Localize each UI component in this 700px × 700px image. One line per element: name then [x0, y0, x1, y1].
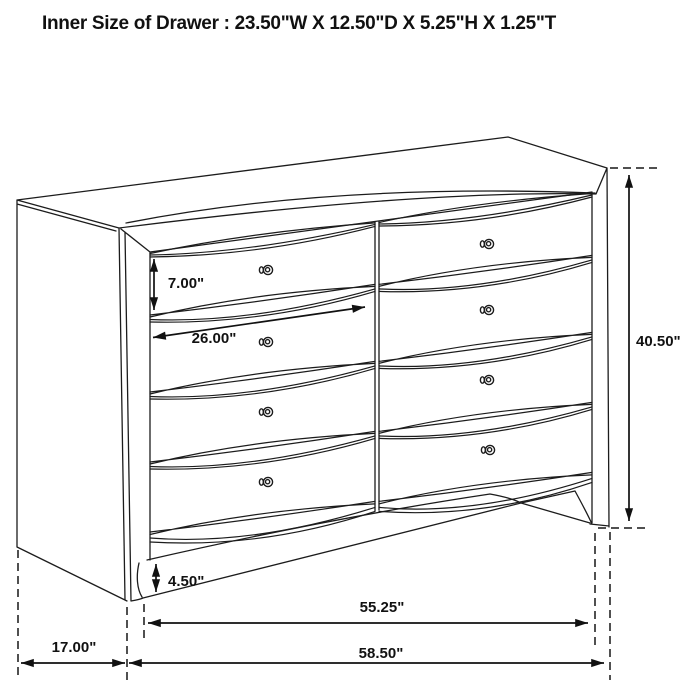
dresser-line-drawing — [17, 137, 609, 601]
dim-label-drawer-height: 7.00" — [168, 275, 204, 292]
cabinet-outline — [17, 137, 609, 601]
drawer-knob-icon — [480, 305, 493, 314]
dresser-dimension-drawing: 7.00" 26.00" 40.50" 4.50" 55.25" 17.00" … — [0, 0, 700, 700]
drawer-knob-icon — [480, 239, 493, 248]
extension-dashed-lines — [18, 168, 657, 680]
drawer-knob-icon — [259, 265, 272, 274]
dimension-annotations: 7.00" 26.00" 40.50" 4.50" 55.25" 17.00" … — [18, 168, 681, 680]
eyebrow-curves-path — [150, 194, 592, 544]
drawer-knob-icon — [481, 445, 494, 454]
dim-label-drawer-width: 26.00" — [192, 330, 237, 347]
dim-label-front-feet-width: 55.25" — [360, 599, 405, 616]
dim-label-overall-height: 40.50" — [636, 333, 681, 350]
drawer-knob-icon — [259, 337, 272, 346]
drawer-knob-icon — [259, 407, 272, 416]
drawer-eyebrow-carvings — [150, 194, 592, 544]
drawer-knob-icon — [259, 477, 272, 486]
drawer-knob-icon — [480, 375, 493, 384]
dim-label-overall-width: 58.50" — [359, 645, 404, 662]
dim-label-side-depth: 17.00" — [52, 639, 97, 656]
dimension-diagram-page: Inner Size of Drawer : 23.50"W X 12.50"D… — [0, 0, 700, 700]
dim-label-leg-height: 4.50" — [168, 573, 204, 590]
